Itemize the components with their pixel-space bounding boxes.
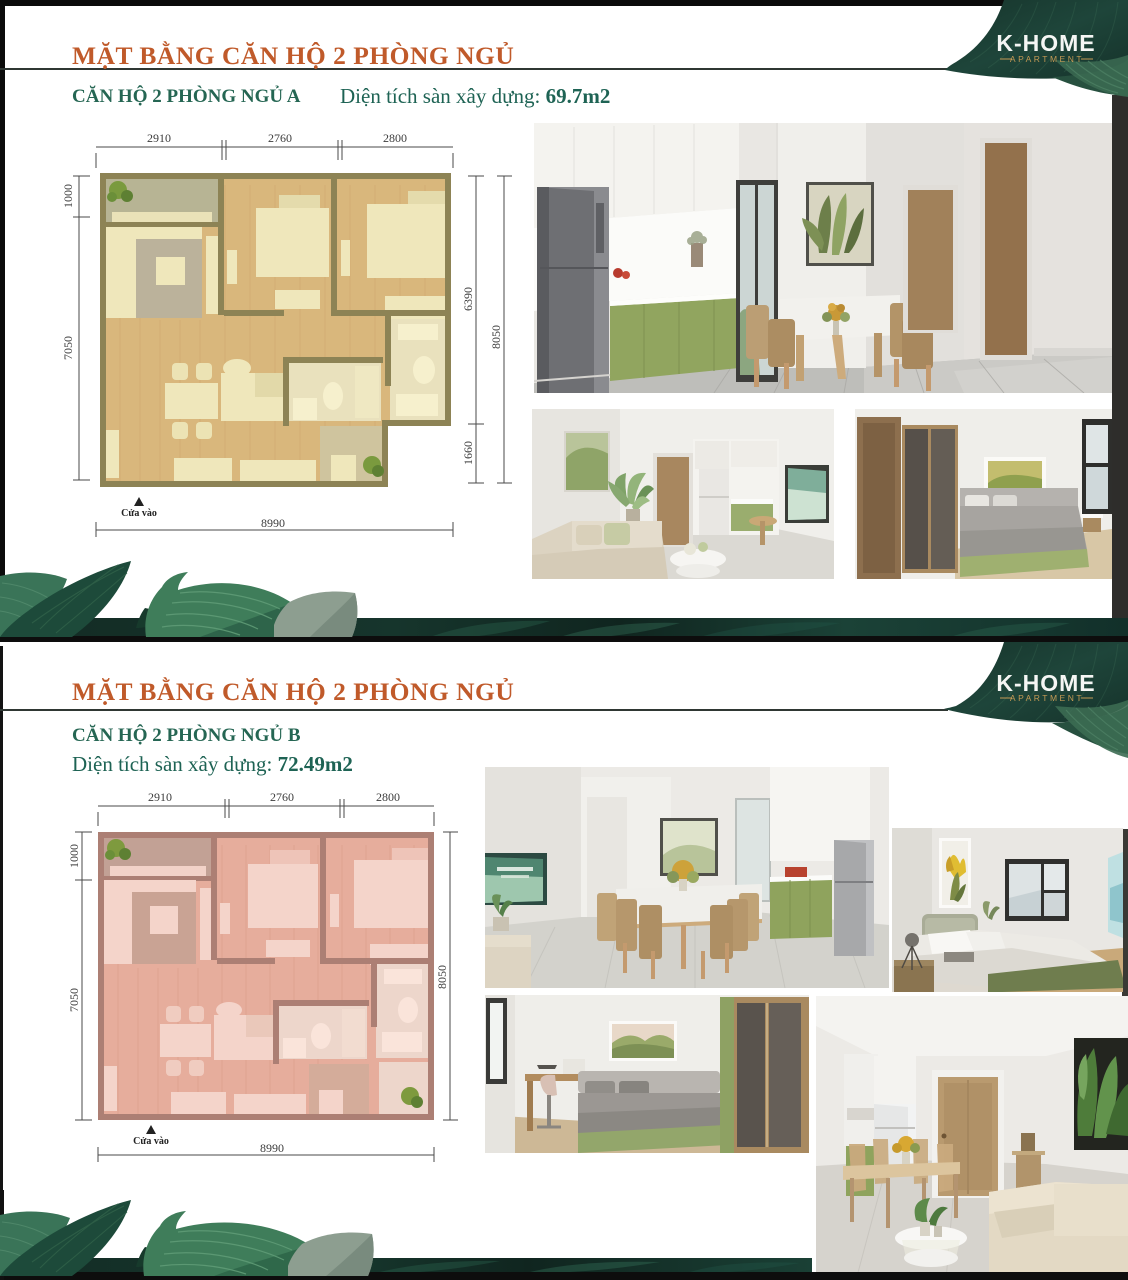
svg-text:APARTMENT: APARTMENT <box>1010 693 1084 703</box>
svg-text:Cửa vào: Cửa vào <box>121 508 157 519</box>
svg-text:6390: 6390 <box>461 287 475 311</box>
svg-text:8050: 8050 <box>489 325 503 349</box>
svg-text:8990: 8990 <box>260 1141 284 1155</box>
svg-text:2800: 2800 <box>383 131 407 145</box>
svg-text:7050: 7050 <box>67 988 81 1012</box>
svg-text:2800: 2800 <box>376 790 400 804</box>
svg-text:2910: 2910 <box>147 131 171 145</box>
svg-text:1660: 1660 <box>461 441 475 465</box>
svg-text:8990: 8990 <box>261 516 285 530</box>
svg-text:K-HOME: K-HOME <box>996 30 1095 56</box>
svg-text:APARTMENT: APARTMENT <box>1010 54 1084 64</box>
svg-text:2760: 2760 <box>268 131 292 145</box>
svg-text:2910: 2910 <box>148 790 172 804</box>
svg-text:1000: 1000 <box>67 844 81 868</box>
svg-text:1000: 1000 <box>61 184 75 208</box>
svg-text:Cửa vào: Cửa vào <box>133 1136 169 1147</box>
svg-text:7050: 7050 <box>61 336 75 360</box>
svg-text:8050: 8050 <box>435 965 449 989</box>
svg-text:2760: 2760 <box>270 790 294 804</box>
